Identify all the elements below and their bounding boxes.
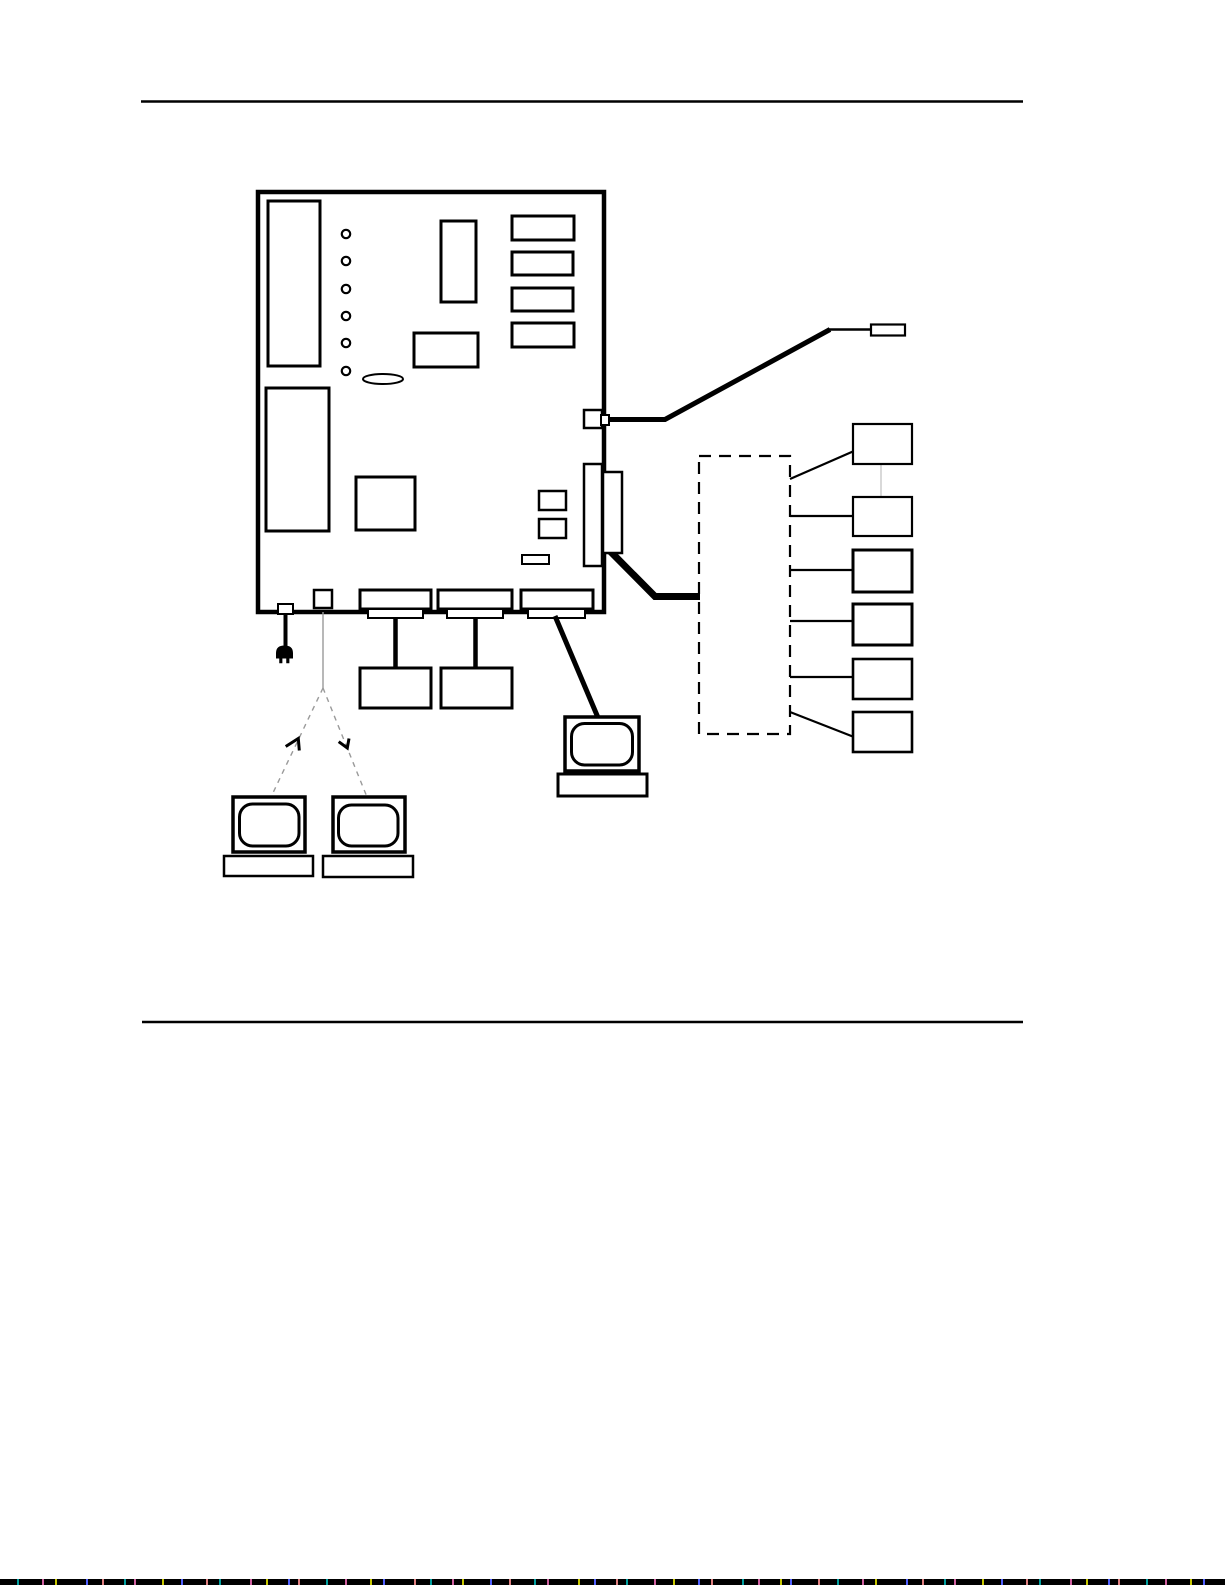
power-plug-icon [277, 646, 293, 658]
page [0, 0, 1225, 1585]
power-plug-prong-2 [287, 658, 290, 663]
bottom-port-1-outer [360, 590, 431, 609]
device-box-2 [853, 497, 912, 536]
drive-box-1 [360, 668, 431, 708]
option-arrow-left-icon [286, 739, 300, 751]
device-box-1 [853, 424, 912, 464]
edge-connector-inner [584, 464, 602, 566]
console-base [558, 774, 647, 796]
bottom-port-2-outer [438, 590, 512, 609]
device-box-3 [853, 550, 912, 592]
system-board-outline [258, 192, 604, 612]
terminal-right-screen [339, 805, 399, 846]
power-plug-prong-1 [280, 658, 283, 663]
console-cable [555, 616, 599, 720]
external-enclosure-dashed [699, 456, 790, 734]
side-port-small-stub [601, 415, 609, 425]
bottom-port-3-outer [521, 590, 593, 609]
device-box-6 [853, 712, 912, 752]
bottom-edge-tab [314, 590, 332, 608]
device-link-1 [790, 451, 854, 479]
bottom-port-1-inner [368, 609, 423, 618]
option-line-left [271, 688, 323, 797]
serial-connector [871, 325, 905, 336]
device-box-4 [853, 604, 912, 645]
terminal-left-base [224, 856, 313, 876]
bottom-port-2-inner [447, 609, 503, 618]
drive-box-2 [441, 668, 512, 708]
serial-cable [607, 330, 830, 420]
edge-connector-outer [603, 472, 622, 553]
scsi-cable [609, 550, 700, 597]
power-connector [278, 604, 293, 614]
device-box-5 [853, 659, 912, 699]
hardware-connection-diagram [0, 0, 1225, 1585]
scan-artifact-strip [0, 1579, 1225, 1585]
device-link-6 [790, 712, 854, 737]
side-port-small [584, 410, 602, 428]
console-screen [572, 724, 633, 766]
terminal-left-screen [240, 804, 300, 846]
terminal-right-base [323, 856, 413, 877]
option-arrow-right-icon [339, 739, 349, 749]
